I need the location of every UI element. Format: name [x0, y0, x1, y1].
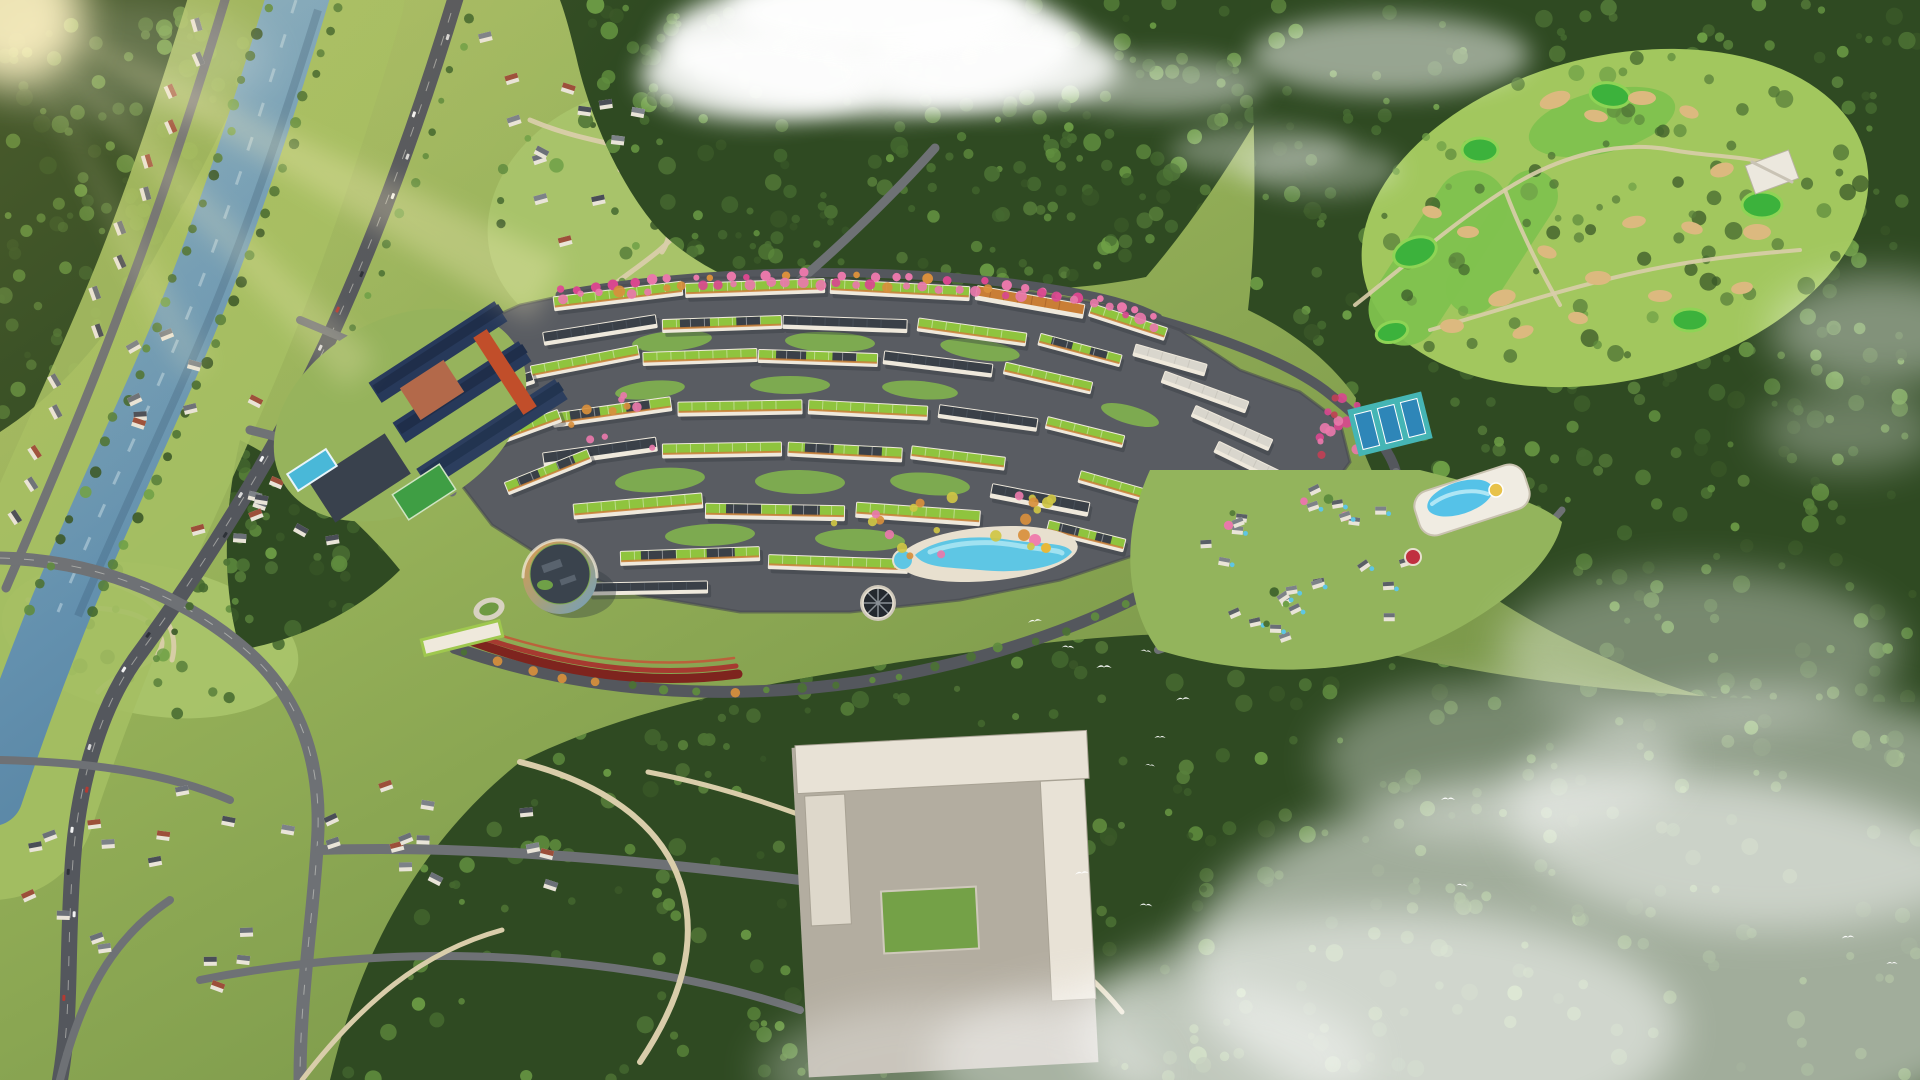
aerial-masterplan-render — [0, 0, 1920, 1080]
plaza-medallion — [860, 585, 896, 621]
villa — [1384, 613, 1395, 621]
scene-canvas — [0, 0, 1920, 1080]
villa — [1200, 540, 1211, 549]
